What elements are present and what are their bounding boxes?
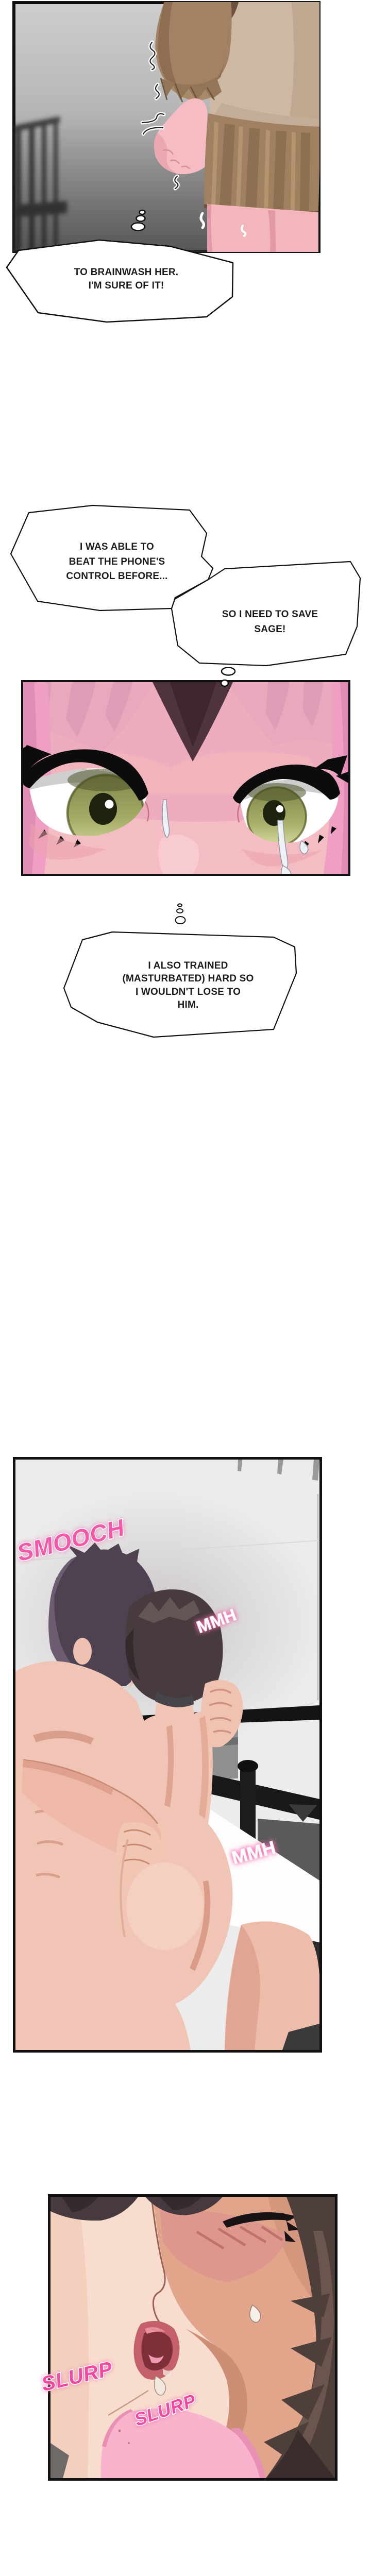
svg-text:I'M SURE OF IT!: I'M SURE OF IT! (89, 280, 164, 291)
svg-text:SO I NEED TO SAVE: SO I NEED TO SAVE (222, 609, 318, 620)
svg-text:SAGE!: SAGE! (254, 624, 285, 635)
svg-text:I ALSO TRAINED: I ALSO TRAINED (148, 960, 228, 971)
svg-text:TO BRAINWASH HER.: TO BRAINWASH HER. (74, 267, 179, 278)
svg-text:BEAT THE PHONE'S: BEAT THE PHONE'S (69, 556, 165, 567)
svg-text:(MASTURBATED) HARD SO: (MASTURBATED) HARD SO (122, 973, 254, 984)
svg-text:I WOULDN'T LOSE TO: I WOULDN'T LOSE TO (136, 987, 241, 997)
svg-text:CONTROL BEFORE...: CONTROL BEFORE... (66, 571, 167, 582)
svg-text:I WAS ABLE TO: I WAS ABLE TO (80, 541, 154, 552)
svg-text:HIM.: HIM. (178, 999, 199, 1010)
